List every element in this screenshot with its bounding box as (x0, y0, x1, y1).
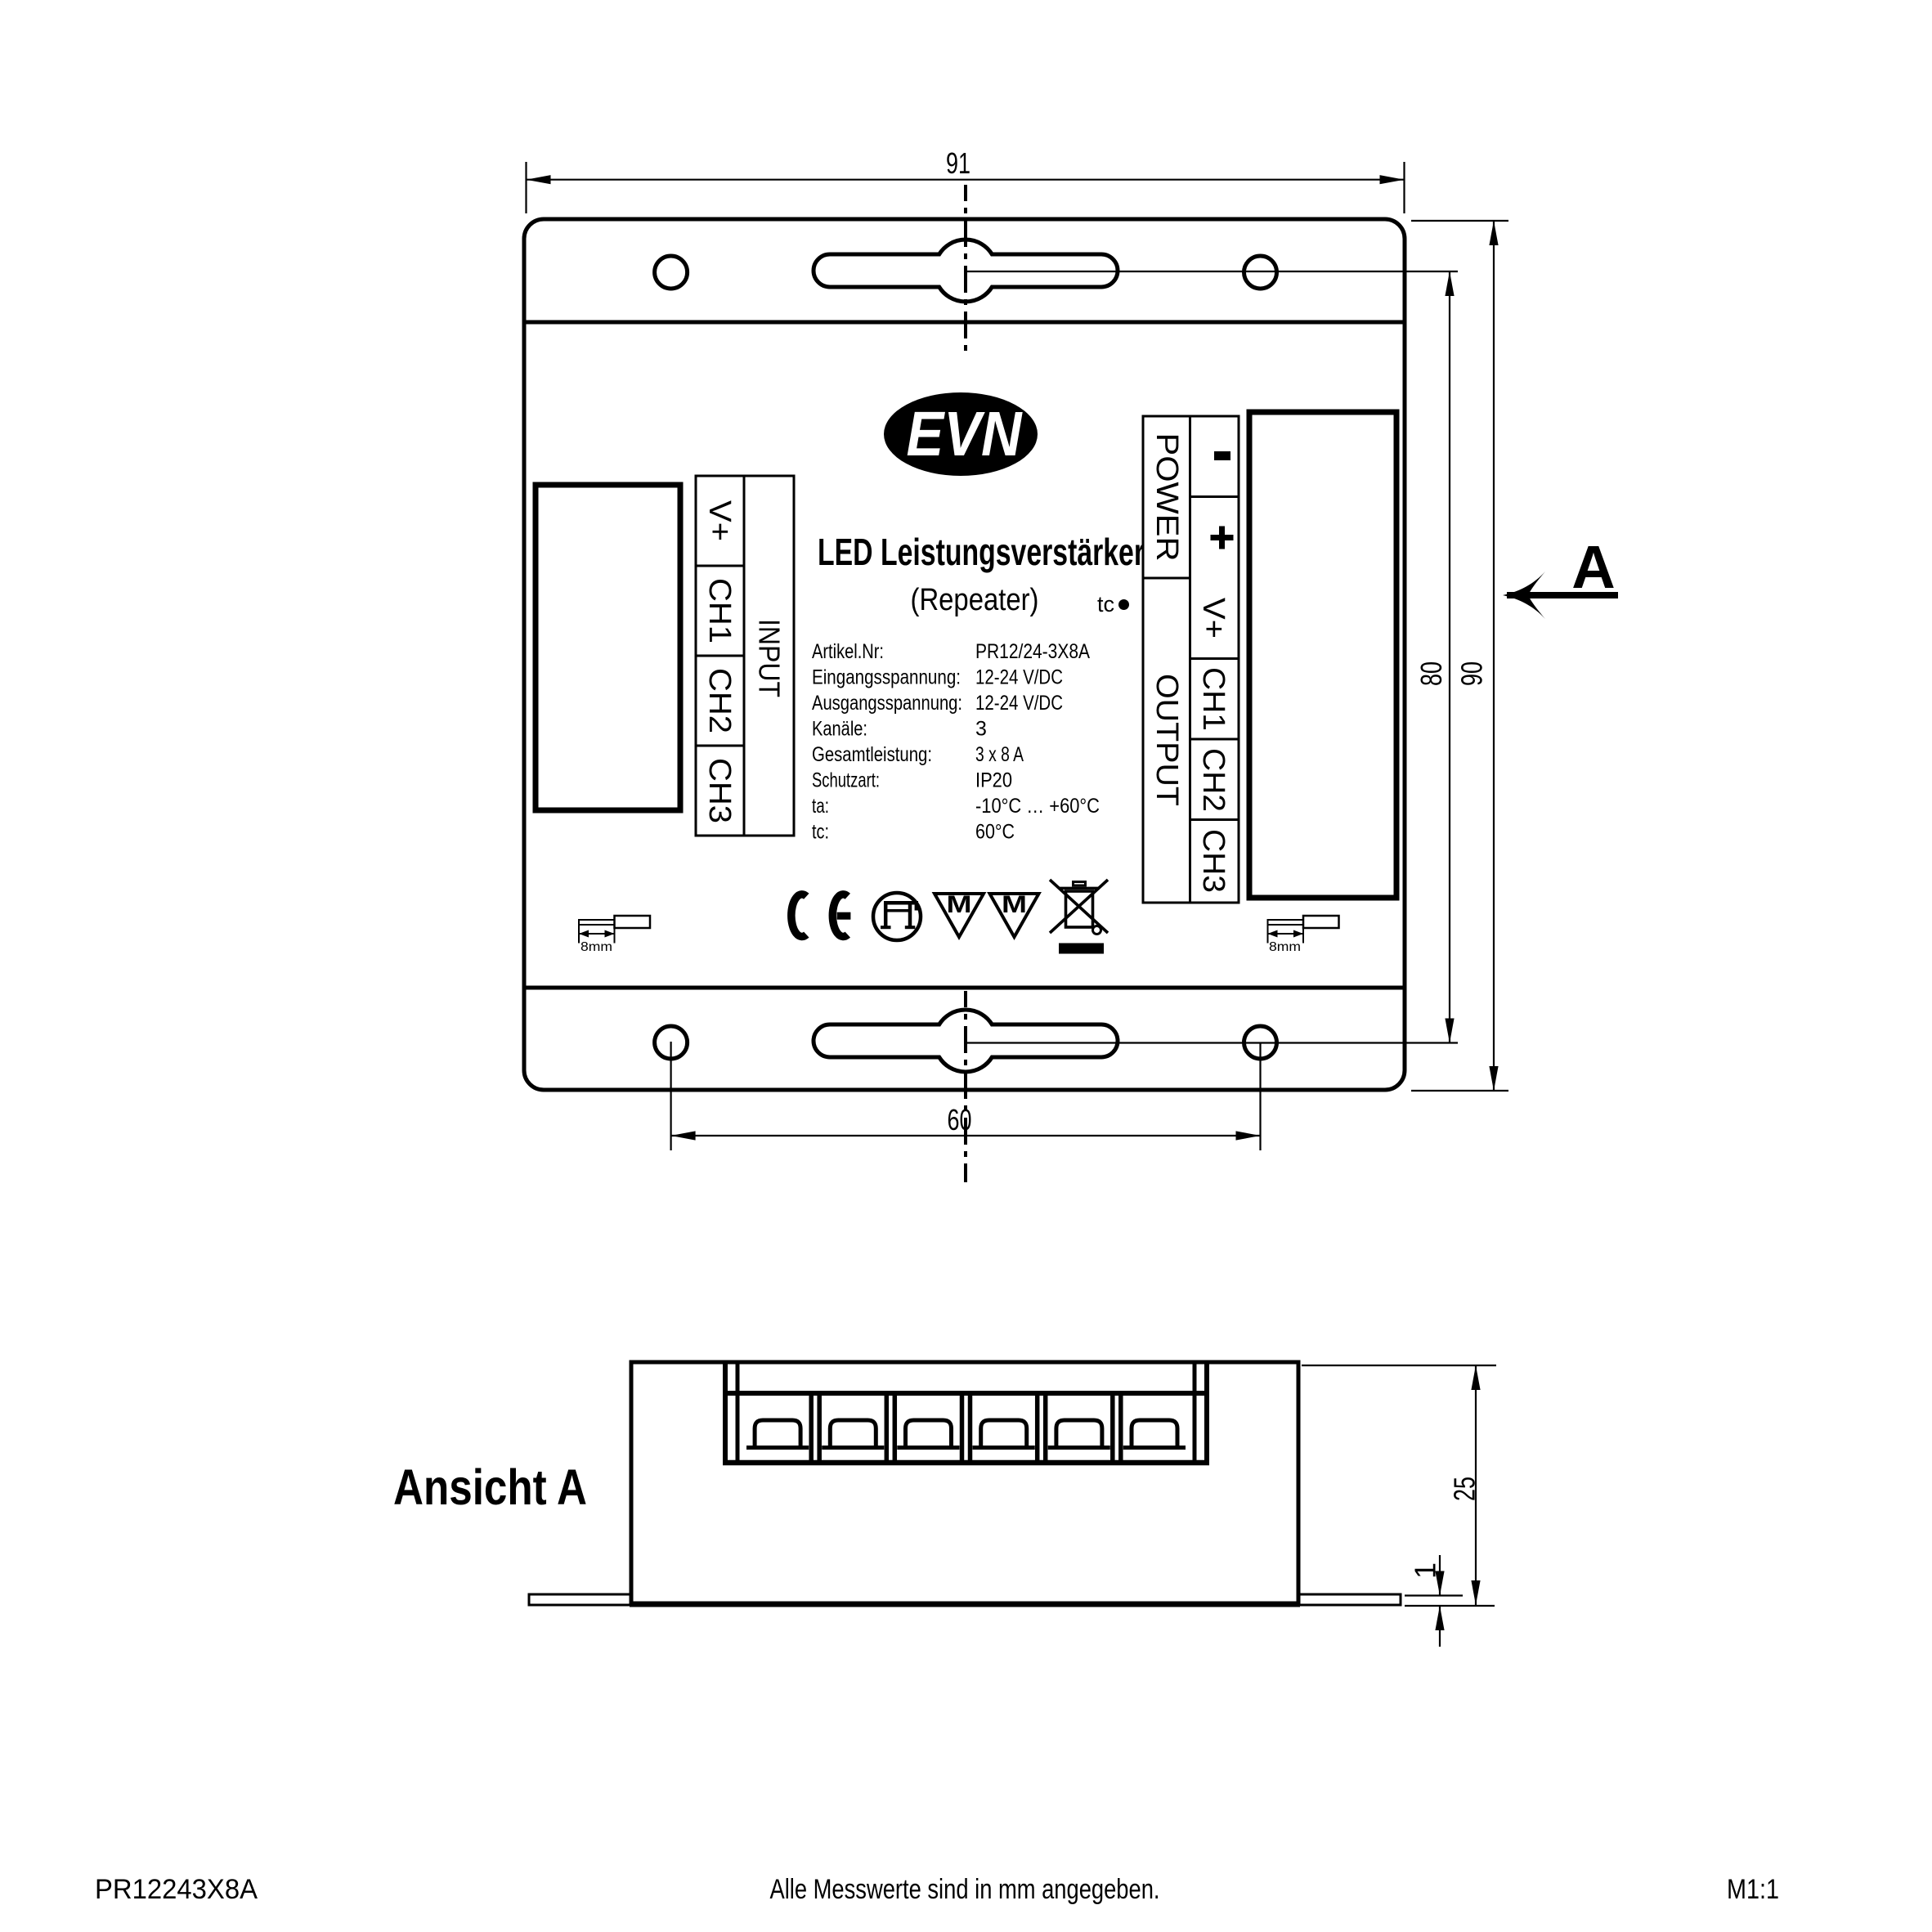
svg-text:A: A (1571, 533, 1615, 601)
svg-text:91: 91 (946, 146, 970, 180)
svg-text:IP20: IP20 (975, 769, 1012, 792)
svg-text:-10°C … +60°C: -10°C … +60°C (975, 795, 1100, 818)
svg-text:Kanäle:: Kanäle: (812, 718, 867, 741)
svg-text:60: 60 (948, 1103, 972, 1136)
svg-text:CH1: CH1 (702, 578, 737, 643)
svg-text:EVN: EVN (907, 399, 1023, 469)
svg-text:CH1: CH1 (1196, 667, 1230, 731)
svg-text:INPUT: INPUT (753, 619, 787, 697)
svg-text:8mm: 8mm (580, 940, 612, 954)
svg-text:CH3: CH3 (1196, 829, 1230, 893)
svg-text:CH2: CH2 (1196, 748, 1230, 812)
svg-text:Artikel.Nr:: Artikel.Nr: (812, 640, 884, 663)
svg-text:60°C: 60°C (975, 821, 1015, 844)
svg-text:25: 25 (1448, 1477, 1481, 1501)
svg-text:tc:: tc: (812, 821, 829, 844)
svg-text:Schutzart:: Schutzart: (812, 769, 880, 792)
svg-text:3 x 8 A: 3 x 8 A (975, 743, 1024, 766)
svg-text:90: 90 (1455, 661, 1489, 686)
svg-text:1: 1 (1409, 1562, 1442, 1579)
svg-text:CH2: CH2 (702, 668, 737, 733)
svg-text:(Repeater): (Repeater) (911, 583, 1039, 617)
svg-text:M1:1: M1:1 (1727, 1874, 1779, 1905)
svg-text:POWER: POWER (1150, 433, 1184, 562)
svg-text:ta:: ta: (812, 795, 829, 818)
svg-text:tc: tc (1097, 592, 1114, 616)
svg-text:3: 3 (975, 718, 987, 741)
svg-text:M: M (1002, 891, 1027, 918)
svg-text:OUTPUT: OUTPUT (1150, 674, 1184, 806)
svg-text:PR12243X8A: PR12243X8A (95, 1874, 258, 1905)
svg-text:PR12/24-3X8A: PR12/24-3X8A (975, 640, 1090, 663)
svg-text:Eingangsspannung:: Eingangsspannung: (812, 666, 961, 689)
svg-text:CH3: CH3 (702, 758, 737, 823)
svg-text:V+: V+ (1196, 598, 1230, 639)
svg-text:12-24 V/DC: 12-24 V/DC (975, 692, 1063, 715)
svg-text:8mm: 8mm (1269, 940, 1301, 954)
svg-text:Alle Messwerte sind in mm ange: Alle Messwerte sind in mm angegeben. (770, 1874, 1160, 1905)
svg-text:80: 80 (1414, 661, 1448, 686)
svg-text:12-24 V/DC: 12-24 V/DC (975, 666, 1063, 689)
svg-text:Ansicht A: Ansicht A (393, 1459, 587, 1515)
svg-text:Gesamtleistung:: Gesamtleistung: (812, 743, 932, 766)
svg-text:LED Leistungsverstärker: LED Leistungsverstärker (818, 531, 1145, 573)
svg-text:Ausgangsspannung:: Ausgangsspannung: (812, 692, 962, 715)
svg-text:M: M (947, 891, 972, 918)
svg-text:V+: V+ (702, 500, 737, 541)
